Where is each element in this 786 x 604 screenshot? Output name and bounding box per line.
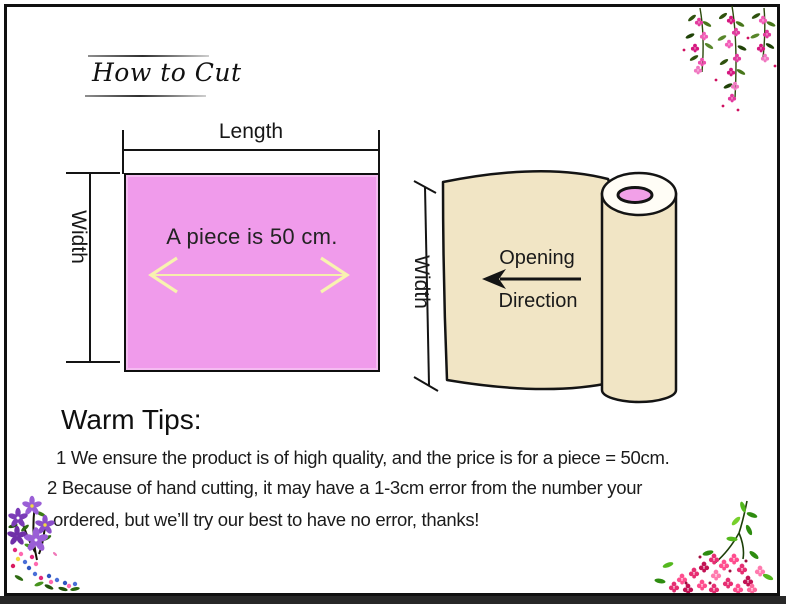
page-title: How to Cut	[92, 58, 242, 87]
purple-bouquet-decoration	[5, 494, 101, 594]
length-label: Length	[124, 120, 378, 144]
piece-width-label: Width	[66, 210, 90, 264]
how-to-cut-infographic: How to Cut Length Width A piece is 50 cm…	[0, 0, 786, 604]
roll-core	[618, 188, 652, 203]
hanging-flowers-decoration	[676, 6, 780, 126]
pink-sprig-decoration	[650, 497, 780, 593]
warm-tip-line-2: 2 Because of hand cutting, it may have a…	[47, 477, 642, 499]
bottom-black-bar	[0, 596, 786, 604]
opening-label: Opening	[499, 247, 575, 269]
length-dimension-tick-right	[378, 130, 380, 174]
fabric-piece-rectangle: A piece is 50 cm.	[124, 173, 380, 372]
length-dimension-tick-left	[122, 130, 124, 174]
warm-tip-line-3: ordered, but we’ll try our best to have …	[53, 509, 479, 531]
direction-label: Direction	[499, 290, 578, 312]
title-divider-bottom	[85, 95, 206, 97]
flower-strands	[683, 6, 777, 111]
title-divider-top	[88, 55, 209, 57]
width-dimension-tick-top	[66, 172, 120, 174]
piece-size-text: A piece is 50 cm.	[126, 224, 378, 250]
warm-tips-heading: Warm Tips:	[61, 404, 202, 436]
roll-width-label: Width	[410, 255, 433, 309]
bouquet-shapes	[6, 496, 80, 592]
fabric-roll-diagram: Width Opening Direction	[398, 150, 690, 410]
warm-tip-line-1: 1 We ensure the product is of high quali…	[56, 447, 669, 469]
width-dimension-line	[89, 173, 91, 363]
double-headed-arrow-icon	[141, 253, 361, 297]
width-dimension-tick-bottom	[66, 361, 120, 363]
sprig-shapes	[654, 501, 774, 593]
length-dimension-line	[122, 149, 380, 151]
roll-cylinder	[602, 194, 676, 402]
